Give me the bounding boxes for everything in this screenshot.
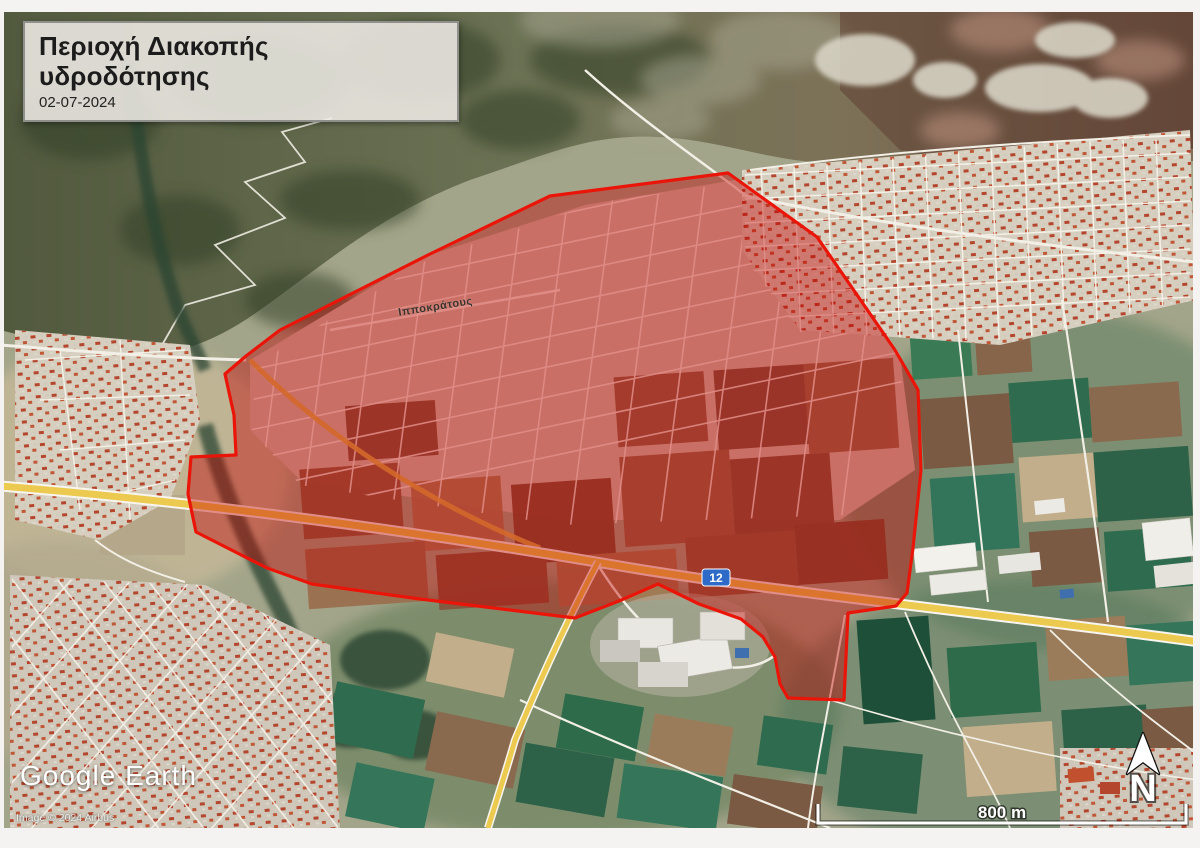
google-earth-watermark: Google Earth (20, 760, 197, 792)
satellite-map[interactable]: 12 800 m N (0, 0, 1200, 848)
north-arrow-label: N (1129, 768, 1156, 810)
hamlet-south-east (1060, 748, 1195, 828)
map-date: 02-07-2024 (39, 94, 443, 111)
route-shield: 12 (702, 569, 730, 586)
map-viewport[interactable]: 12 800 m N Περιοχή Διακοπής υδροδότησης … (0, 0, 1200, 848)
scale-bar-label: 800 m (978, 803, 1026, 822)
imagery-attribution: Image © 2024 Airbus (16, 812, 114, 824)
map-title-box: Περιοχή Διακοπής υδροδότησης 02-07-2024 (23, 21, 459, 122)
map-title: Περιοχή Διακοπής υδροδότησης (39, 31, 443, 91)
route-shield-number: 12 (709, 571, 723, 585)
